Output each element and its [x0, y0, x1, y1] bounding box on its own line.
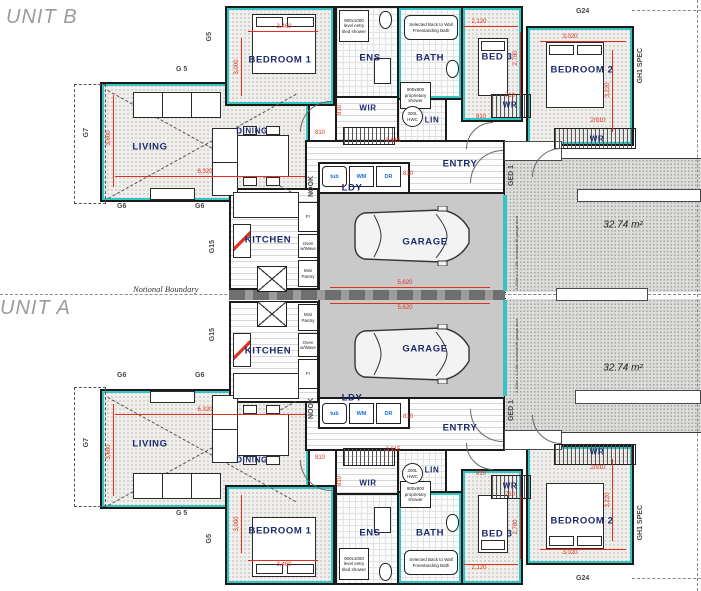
- label-dining-a: DINING: [236, 456, 268, 465]
- dim-line: [520, 32, 521, 96]
- dim-line: [248, 31, 318, 32]
- dining-table-icon-b: [237, 135, 289, 177]
- label-living-b: LIVING: [132, 142, 167, 153]
- dim-line: [612, 459, 613, 541]
- pantry-icon-a: Mini Pantry: [298, 304, 318, 331]
- label-living-a: LIVING: [132, 439, 167, 450]
- chair-icon: [243, 405, 257, 414]
- label-bedroom2-b: BEDROOM 2: [551, 65, 614, 76]
- label-ldy-a: LDY: [342, 393, 363, 404]
- dim-bedroom1-h-a: 3,000: [234, 516, 240, 531]
- grid-gh1-a: GH1 SPEC: [637, 505, 644, 540]
- dim-line: [540, 549, 626, 550]
- sofa-icon-a: [133, 473, 221, 499]
- label-kitchen-a: KITCHEN: [245, 346, 291, 357]
- door-arc-bed3-b: [466, 122, 493, 149]
- pillow-icon: [481, 540, 505, 550]
- chair-icon: [243, 177, 257, 186]
- label-dining-b: DINING: [236, 127, 268, 136]
- top-right-dashed: [632, 10, 701, 11]
- pillow-icon: [481, 41, 505, 51]
- toilet-icon-ens-b: [379, 11, 392, 29]
- hwc-icon-b: 300L HWC: [402, 106, 423, 127]
- dim-living-w-b: 6,320: [197, 169, 212, 175]
- grid-g6-b2: G6: [195, 203, 204, 210]
- dim-line: [462, 26, 518, 27]
- label-bedroom1-a: BEDROOM 1: [249, 526, 312, 537]
- grid-g15-b: G15: [209, 240, 216, 253]
- hwc-icon-a: 300L HWC: [402, 463, 423, 484]
- toilet-icon-bath-a: [446, 514, 459, 532]
- fridge-icon-b: Fr: [298, 202, 318, 232]
- label-ens-a: ENS: [359, 528, 380, 539]
- dim-bedroom2-h-a: 3,220: [605, 492, 611, 507]
- grid-ged1-a: GED 1: [508, 400, 515, 421]
- freestanding-bath-b: Selected Back to Wall Freestanding Bath: [404, 15, 458, 40]
- label-bath-a: BATH: [416, 528, 444, 539]
- dim-bedroom2-w-b: 3,020: [562, 34, 577, 40]
- island-bench-icon-b: [233, 192, 299, 218]
- dim-810-b4: 810: [476, 114, 486, 120]
- dim-garage-w-b: 5,620: [397, 280, 412, 286]
- dim-line: [540, 41, 626, 42]
- label-bedroom1-b: BEDROOM 1: [249, 55, 312, 66]
- label-bed3-a: BED 3: [482, 529, 513, 540]
- unit-a-title: UNIT A: [0, 297, 71, 320]
- dim-2910-b: 2/910: [590, 118, 605, 124]
- garage-door-note-a: 2,400w x 2,140h sectional lift garage do…: [514, 303, 519, 393]
- label-nook-a: NOOK: [308, 398, 315, 419]
- shower900-b: 900x900 proprietary shower: [400, 82, 431, 109]
- dim-810-b1: 810: [315, 130, 325, 136]
- chair-icon: [266, 177, 280, 186]
- dim-line: [612, 50, 613, 132]
- label-wr-bedroom2-a: WR: [590, 448, 605, 457]
- dim-line: [520, 495, 521, 559]
- floor-plan: UNIT B UNIT A Notional Boundary 2,400w x…: [0, 0, 701, 591]
- dim-line: [113, 95, 114, 187]
- label-ldy-b: LDY: [342, 183, 363, 194]
- dim-line: [241, 38, 242, 96]
- toilet-icon-ens-a: [379, 563, 392, 581]
- label-bed3-b: BED 3: [482, 52, 513, 63]
- dim-bed3-h-a: 2,780: [513, 519, 519, 534]
- dim-garage-w-a: 5,620: [397, 305, 412, 311]
- dim-living-h-b: 3,600: [106, 130, 112, 145]
- label-garage-b: GARAGE: [402, 237, 447, 248]
- grid-g24-b: G24: [576, 8, 589, 15]
- dim-line: [330, 303, 490, 304]
- bottom-right-dashed: [632, 578, 701, 579]
- pillow-icon: [577, 536, 602, 546]
- oven-icon-a: Oven w/Wave: [298, 333, 318, 357]
- ens-shower-b: 900x1000 level entry tiled shower: [339, 10, 369, 42]
- boundary-crossing-bar: [556, 288, 648, 301]
- label-wr-bedroom2-b: WR: [590, 135, 605, 144]
- grid-g6-a1: G6: [117, 372, 126, 379]
- grid-g6-a2: G6: [195, 372, 204, 379]
- freestanding-bath-a: Selected Back to Wall Freestanding Bath: [404, 550, 458, 575]
- grid-g7-b: G7: [83, 128, 90, 137]
- ens-shower-a: 900x1000 level entry tiled shower: [339, 548, 369, 580]
- patio-b: [74, 84, 106, 204]
- dim-810-b3: 810: [403, 171, 413, 177]
- label-nook-b: NOOK: [308, 176, 315, 197]
- pillow-icon: [549, 536, 574, 546]
- dim-810-a4: 810: [476, 471, 486, 477]
- label-wr-bed3-b: WR: [503, 101, 518, 110]
- oven-icon-b: Oven w/Wave: [298, 234, 318, 258]
- island-bench-icon-a: [233, 373, 299, 399]
- fridge-icon-a: Fr: [298, 359, 318, 389]
- label-ens-b: ENS: [359, 53, 380, 64]
- grid-g5v-b: G5: [206, 32, 213, 41]
- dim-bedroom2-h-b: 3,220: [605, 82, 611, 97]
- washing-machine-icon-a: WM: [349, 403, 374, 424]
- driveway-path-a: [575, 390, 701, 404]
- dim-bed3-h-b: 2,780: [513, 50, 519, 65]
- label-wir-a: WIR: [359, 479, 376, 488]
- dim-810-b2: 810: [337, 105, 343, 115]
- dryer-icon-a: DR: [376, 403, 401, 424]
- grid-g5-b: G 5: [176, 66, 187, 73]
- dim-2615-a: 2,615: [385, 447, 400, 453]
- grid-g24-a: G24: [576, 575, 589, 582]
- label-wir-b: WIR: [359, 104, 376, 113]
- grid-g5v-a: G5: [206, 534, 213, 543]
- chair-icon: [266, 126, 280, 135]
- dim-bedroom1-w-a: 3,460: [276, 562, 291, 568]
- door-arc-bed3-a: [466, 443, 493, 470]
- right-boundary-dashed: [697, 0, 698, 591]
- dim-line: [330, 287, 490, 288]
- tv-unit-icon-b: [150, 188, 195, 200]
- dim-line: [115, 176, 305, 177]
- chair-icon: [266, 456, 280, 465]
- dim-bedroom2-w-a: 3,020: [562, 550, 577, 556]
- grid-g15-a: G15: [209, 328, 216, 341]
- driveway-area-b: 32.74 m²: [603, 220, 642, 231]
- dining-table-icon-a: [237, 414, 289, 456]
- unit-b-title: UNIT B: [6, 6, 78, 29]
- grid-g7-a: G7: [83, 438, 90, 447]
- label-entry-b: ENTRY: [443, 159, 478, 170]
- sofa2-icon-b: [212, 128, 238, 196]
- grid-g5-a: G 5: [176, 510, 187, 517]
- dim-2910-a: 2/910: [590, 465, 605, 471]
- notional-boundary-label: Notional Boundary: [133, 284, 198, 294]
- tub-icon-a: tub: [322, 403, 347, 424]
- dim-810-a1: 810: [315, 455, 325, 461]
- garage-door-b: [503, 195, 507, 291]
- sofa-icon-b: [133, 92, 221, 118]
- label-bedroom2-a: BEDROOM 2: [551, 516, 614, 527]
- dim-bed3-w-b: 2,120: [471, 19, 486, 25]
- dim-bed3-w-a: 2,120: [471, 565, 486, 571]
- label-wr-bed3-a: WR: [503, 482, 518, 491]
- dim-line: [115, 414, 305, 415]
- dim-line: [248, 560, 318, 561]
- toilet-icon-bath-b: [446, 60, 459, 78]
- dim-bedroom1-h-b: 3,000: [234, 59, 240, 74]
- grid-g6-b1: G6: [117, 203, 126, 210]
- dim-line: [462, 564, 518, 565]
- dim-bedroom1-w-b: 3,460: [276, 24, 291, 30]
- label-garage-a: GARAGE: [402, 344, 447, 355]
- label-kitchen-b: KITCHEN: [245, 235, 291, 246]
- dim-810-a3: 810: [403, 414, 413, 420]
- driveway-area-a: 32.74 m²: [603, 363, 642, 374]
- dim-line: [113, 404, 114, 496]
- grid-ged1-b: GED 1: [508, 165, 515, 186]
- patio-a: [74, 387, 106, 507]
- chair-icon: [266, 405, 280, 414]
- pantry-icon-b: Mini Pantry: [298, 260, 318, 287]
- rangehood-icon-a: [257, 301, 287, 327]
- dim-810-a2: 810: [337, 476, 343, 486]
- dim-710-b: 710: [505, 93, 515, 99]
- shower900-a: 900x900 proprietary shower: [400, 481, 431, 508]
- driveway-path-b: [577, 189, 701, 202]
- garage-door-a: [503, 300, 507, 396]
- dim-living-w-a: 6,320: [197, 407, 212, 413]
- sofa2-icon-a: [212, 395, 238, 463]
- grid-gh1-b: GH1 SPEC: [637, 48, 644, 83]
- dim-2615-b: 2,615: [385, 138, 400, 144]
- label-bath-b: BATH: [416, 53, 444, 64]
- dim-living-h-a: 3,600: [106, 444, 112, 459]
- dryer-icon-b: DR: [376, 166, 401, 187]
- tv-unit-icon-a: [150, 391, 195, 403]
- pillow-icon: [577, 45, 602, 55]
- pillow-icon: [549, 45, 574, 55]
- label-entry-a: ENTRY: [443, 423, 478, 434]
- rangehood-icon-b: [257, 266, 287, 292]
- label-lin-a: LIN: [425, 466, 440, 475]
- dim-line: [241, 495, 242, 553]
- garage-door-note-b: 2,400w x 2,140h sectional lift garage do…: [514, 200, 519, 290]
- dim-710-a: 710: [505, 492, 515, 498]
- label-lin-b: LIN: [425, 116, 440, 125]
